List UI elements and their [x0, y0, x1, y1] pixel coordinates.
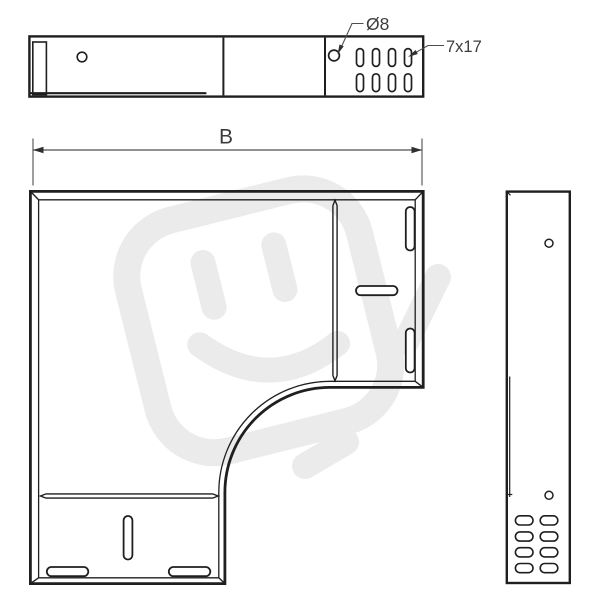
watermark-right-eye	[274, 245, 285, 290]
drawing-svg: Ø8 7x17 B	[0, 0, 600, 600]
slot	[406, 329, 415, 373]
hole-diameter-label: Ø8	[366, 14, 389, 34]
side-view	[507, 192, 570, 583]
dimension-B: B	[33, 126, 422, 186]
dimension-arrow-right	[412, 147, 423, 153]
watermark-pin-bottom	[305, 442, 346, 466]
plan-seam-horizontal	[41, 494, 219, 498]
slot	[406, 207, 415, 251]
watermark-smile	[200, 312, 341, 387]
watermark-left-eye	[203, 263, 214, 308]
slot	[169, 567, 211, 576]
slot	[356, 286, 398, 295]
side-view-outline	[507, 192, 570, 583]
drawing-canvas: Ø8 7x17 B	[0, 0, 600, 600]
slot-size-label: 7x17	[446, 38, 482, 56]
slot	[47, 567, 89, 576]
watermark-face	[114, 177, 403, 466]
top-view	[29, 36, 423, 96]
slot	[124, 516, 133, 560]
dimension-arrow-left	[33, 147, 44, 153]
width-dimension-label: B	[219, 126, 233, 149]
plug-smiley-watermark	[114, 177, 438, 466]
